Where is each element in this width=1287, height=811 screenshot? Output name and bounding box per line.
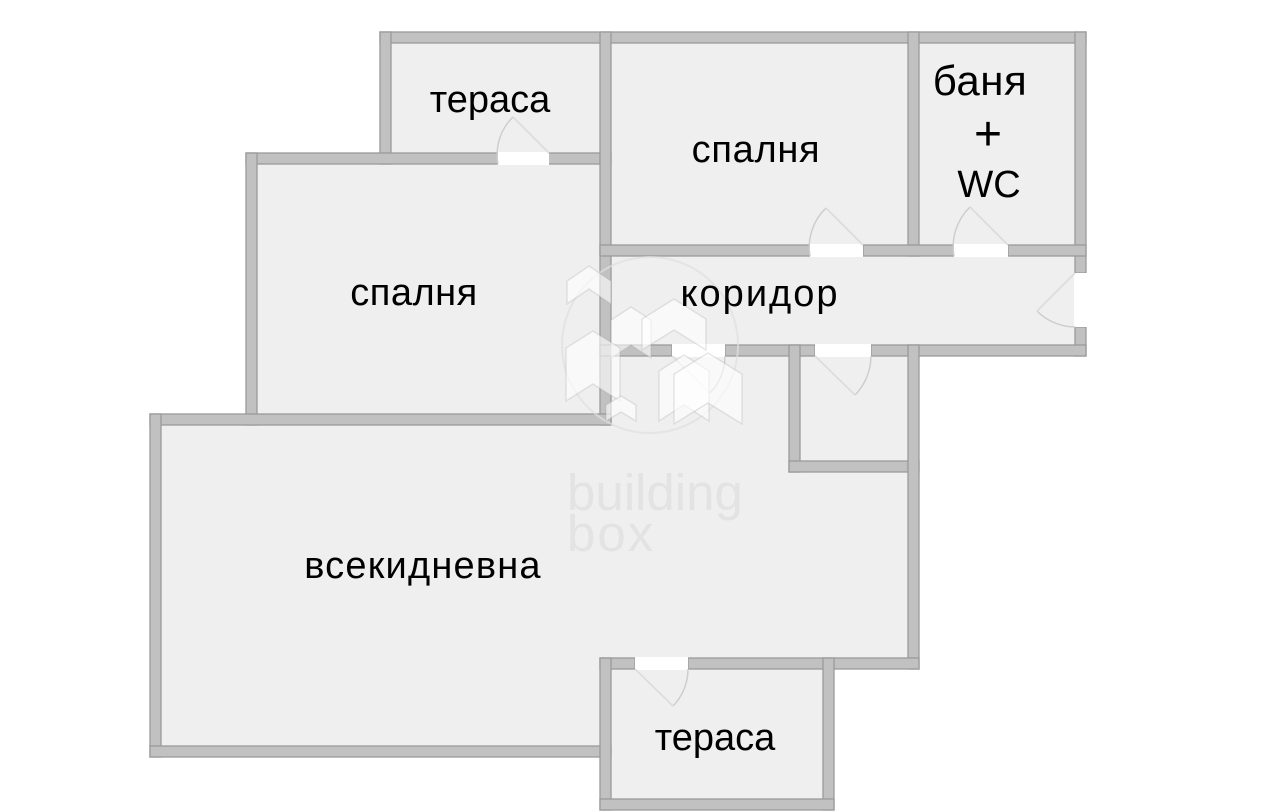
svg-text:box: box [567, 505, 655, 562]
svg-text:спалня: спалня [692, 129, 821, 171]
svg-text:тераса: тераса [655, 717, 776, 759]
svg-text:тераса: тераса [430, 79, 551, 121]
svg-text:+: + [974, 108, 1002, 161]
svg-text:спалня: спалня [350, 272, 477, 314]
svg-text:баня: баня [933, 57, 1027, 104]
svg-text:всекидневна: всекидневна [304, 545, 542, 587]
svg-text:коридор: коридор [681, 273, 840, 315]
svg-text:WC: WC [957, 164, 1020, 206]
